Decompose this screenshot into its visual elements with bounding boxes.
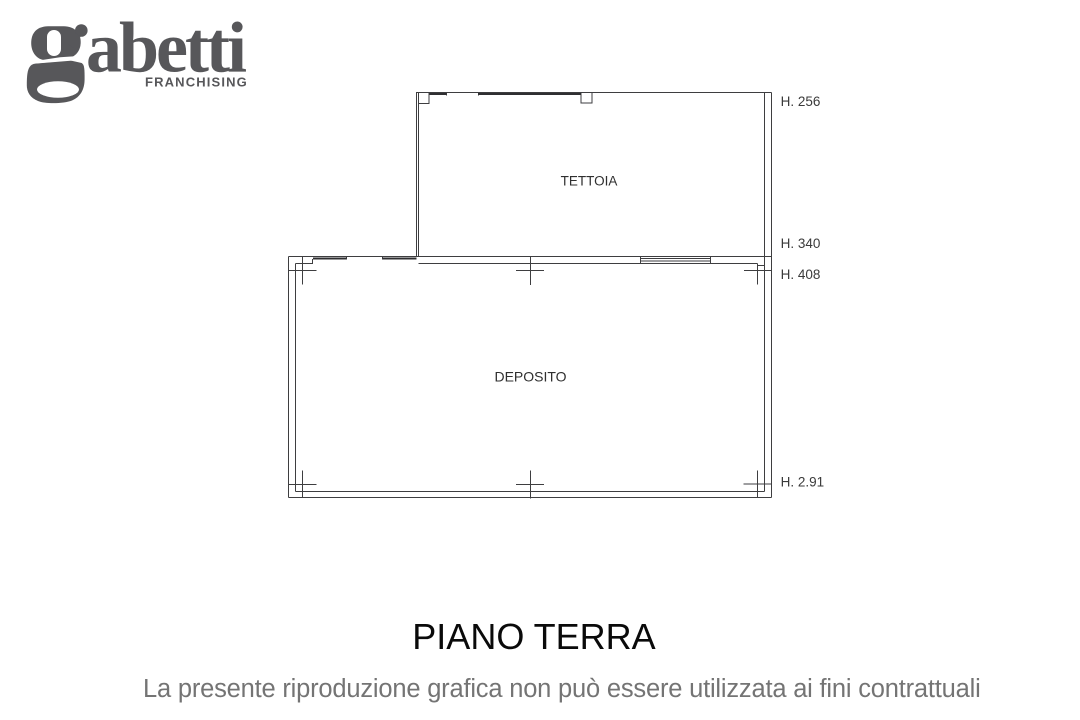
svg-text:H. 408: H. 408	[781, 267, 821, 282]
svg-text:H. 2.91: H. 2.91	[781, 475, 825, 490]
svg-text:TETTOIA: TETTOIA	[561, 174, 618, 189]
svg-text:H. 256: H. 256	[781, 94, 821, 109]
svg-text:DEPOSITO: DEPOSITO	[494, 369, 566, 385]
svg-text:H. 340: H. 340	[781, 236, 821, 251]
